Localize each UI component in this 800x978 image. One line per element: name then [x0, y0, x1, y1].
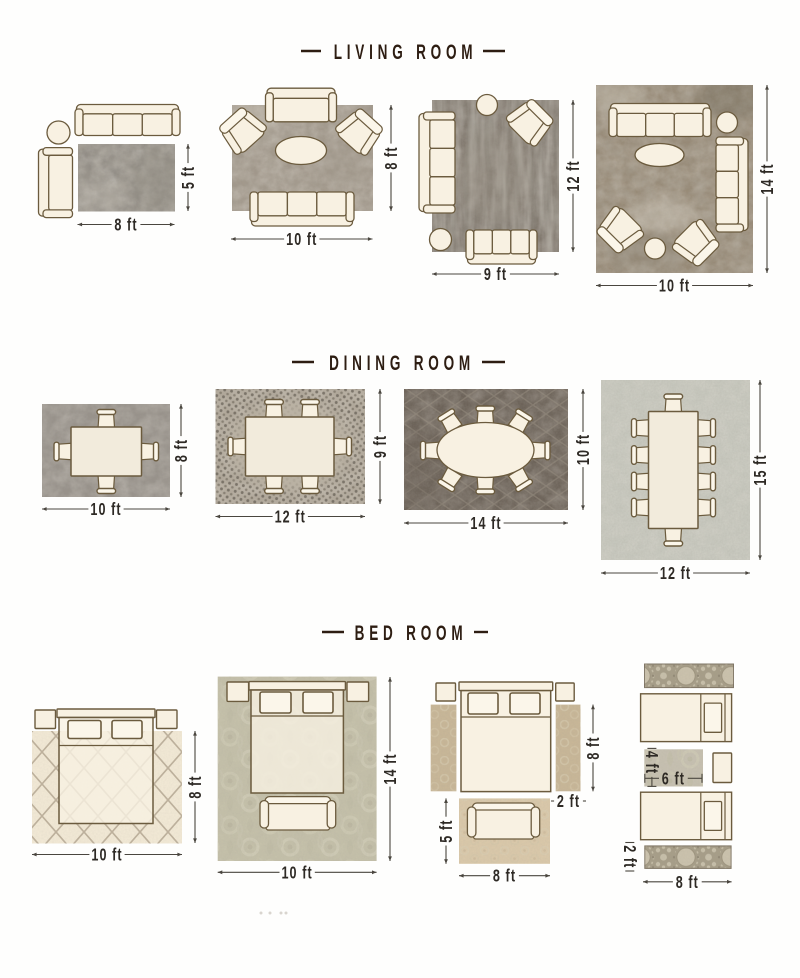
svg-text:15 ft: 15 ft [751, 454, 771, 485]
svg-text:9 ft: 9 ft [371, 435, 391, 458]
svg-text:8 ft: 8 ft [382, 146, 402, 169]
svg-text:10 ft: 10 ft [659, 277, 690, 297]
svg-text:5 ft: 5 ft [437, 819, 457, 842]
svg-text:2 ft: 2 ft [557, 792, 580, 812]
svg-text:14 ft: 14 ft [470, 514, 501, 534]
svg-text:2 ft: 2 ft [619, 845, 639, 868]
svg-text:10 ft: 10 ft [574, 434, 594, 465]
svg-text:14 ft: 14 ft [381, 753, 401, 784]
svg-text:12 ft: 12 ft [660, 564, 691, 584]
svg-text:14 ft: 14 ft [758, 163, 778, 194]
svg-text:12 ft: 12 ft [564, 160, 584, 191]
svg-text:8 ft: 8 ft [172, 439, 192, 462]
svg-text:4 ft: 4 ft [641, 751, 661, 774]
svg-text:8 ft: 8 ft [676, 873, 699, 893]
svg-text:9 ft: 9 ft [484, 265, 507, 285]
svg-text:10 ft: 10 ft [286, 230, 317, 250]
svg-text:LIVING ROOM: LIVING ROOM [334, 40, 478, 64]
svg-text:8 ft: 8 ft [114, 216, 137, 236]
svg-text:8 ft: 8 ft [186, 775, 206, 798]
svg-text:12 ft: 12 ft [275, 508, 306, 528]
svg-text:8 ft: 8 ft [584, 736, 604, 759]
svg-text:8 ft: 8 ft [493, 867, 516, 887]
svg-text:BED ROOM: BED ROOM [355, 621, 468, 645]
svg-text:10 ft: 10 ft [281, 863, 312, 883]
svg-text:5 ft: 5 ft [179, 166, 199, 189]
svg-text:10 ft: 10 ft [91, 846, 122, 866]
svg-text:DINING ROOM: DINING ROOM [329, 351, 475, 375]
svg-text:10 ft: 10 ft [90, 500, 121, 520]
svg-text:6 ft: 6 ft [662, 769, 685, 789]
